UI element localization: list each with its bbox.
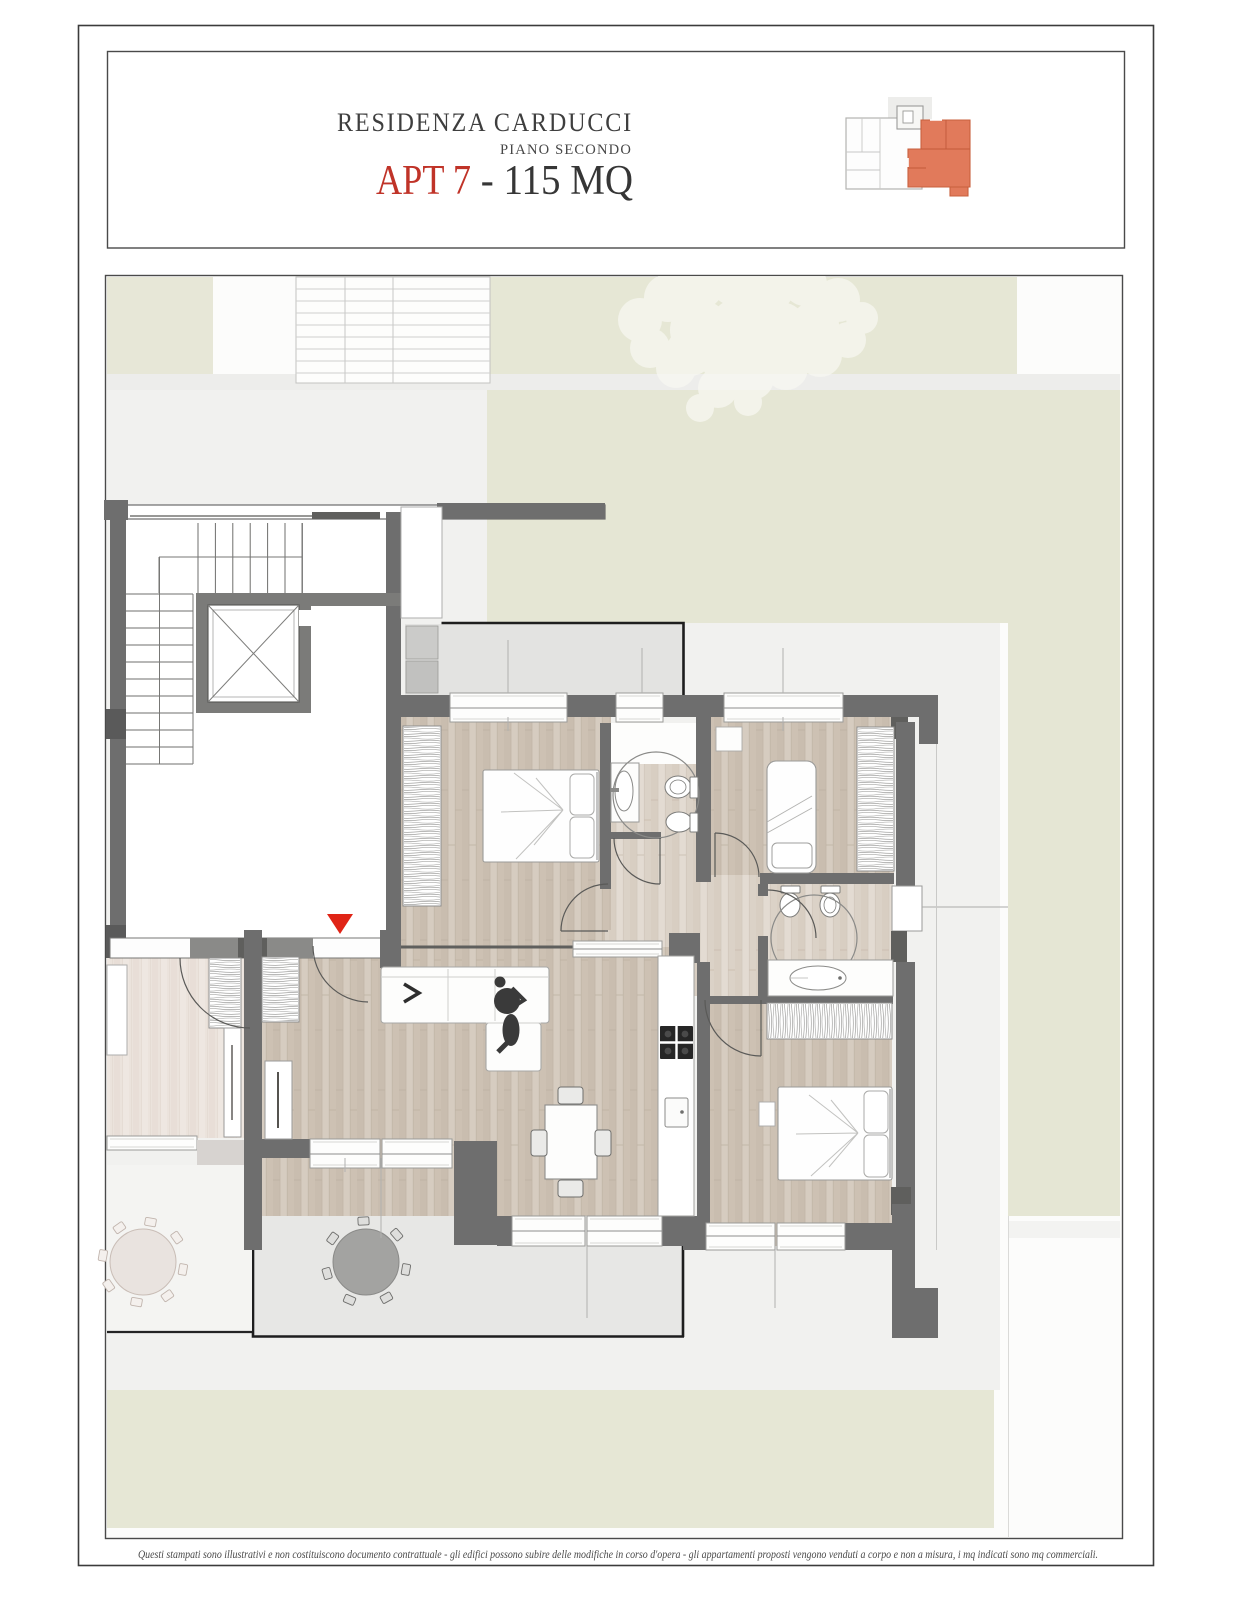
svg-text:PIANO SECONDO: PIANO SECONDO — [500, 142, 632, 158]
svg-text:APT 7 - 115 MQ: APT 7 - 115 MQ — [376, 158, 633, 204]
svg-text:RESIDENZA CARDUCCI: RESIDENZA CARDUCCI — [337, 107, 633, 137]
svg-text:Questi stampati sono illustrat: Questi stampati sono illustrativi e non … — [138, 1549, 1098, 1561]
